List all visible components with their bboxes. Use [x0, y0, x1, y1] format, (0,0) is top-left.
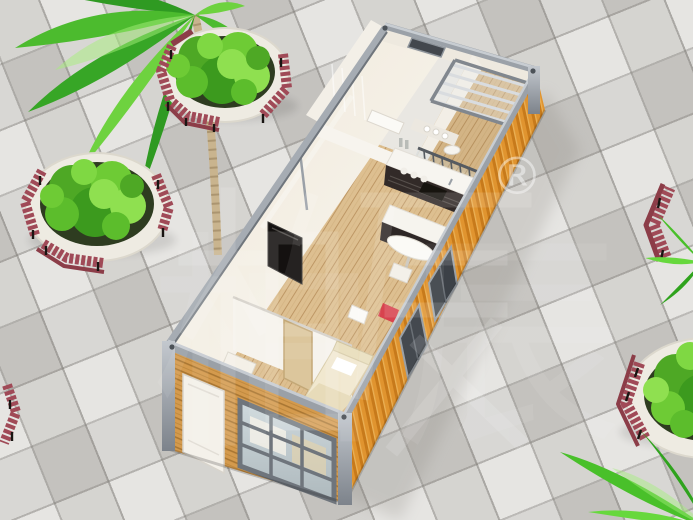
dish: [424, 126, 430, 132]
canister: [405, 140, 409, 149]
balcony-chair: [444, 146, 460, 155]
canister: [399, 138, 403, 147]
watermark: 柏辰 ®: [150, 147, 638, 480]
corner-casting: [382, 25, 387, 30]
dish: [442, 133, 448, 139]
scene-svg: 柏辰 ®: [0, 0, 693, 520]
corner-casting: [530, 68, 535, 73]
planter-right-edge: [645, 184, 693, 315]
render-canvas: 柏辰 ®: [0, 0, 693, 520]
dish: [421, 176, 428, 183]
dish: [401, 168, 408, 175]
planter-left: [25, 153, 169, 272]
dish: [411, 172, 418, 179]
registered-trademark-symbol: ®: [491, 147, 543, 207]
bench-bottom-left-edge: [4, 385, 16, 443]
dish: [433, 129, 439, 135]
